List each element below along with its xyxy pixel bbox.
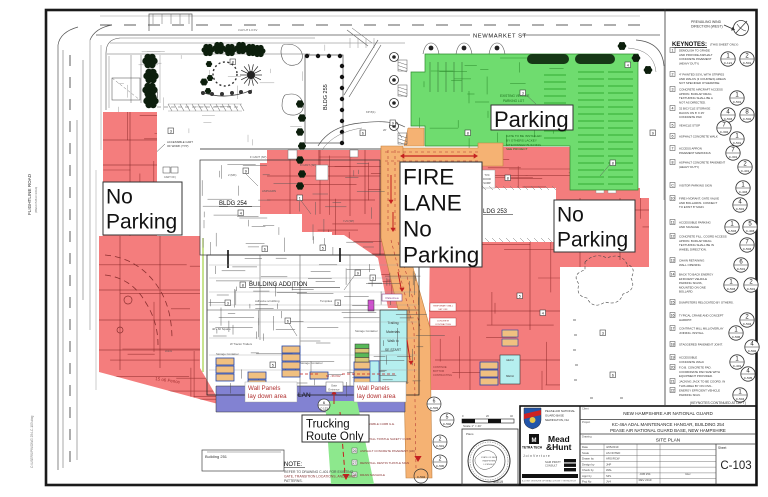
- svg-text:No: No: [106, 185, 133, 208]
- svg-text:(KEYNOTES CONTINUED AT LEFT): (KEYNOTES CONTINUED AT LEFT): [690, 401, 746, 405]
- svg-text:ASPHALT CONCRETE WALK: ASPHALT CONCRETE WALK: [679, 135, 718, 139]
- svg-text:Appr by: Appr by: [582, 474, 592, 478]
- svg-text:8: 8: [467, 131, 469, 135]
- svg-text:Client: Client: [582, 407, 589, 411]
- svg-text:Parking: Parking: [106, 210, 177, 233]
- svg-text:Trailing: Trailing: [388, 321, 399, 325]
- svg-text:Scale 1" = 40': Scale 1" = 40': [463, 424, 482, 428]
- svg-text:21: 21: [671, 380, 675, 384]
- svg-text:8: 8: [672, 161, 674, 165]
- svg-text:9: 9: [357, 271, 359, 275]
- svg-text:BOLLARD.: BOLLARD.: [679, 290, 693, 294]
- svg-text:Rev: Rev: [686, 472, 692, 476]
- svg-text:No: No: [403, 217, 432, 242]
- svg-text:2: 2: [439, 457, 442, 463]
- svg-text:8 CANT (SP): 8 CANT (SP): [300, 163, 316, 167]
- svg-text:C-501: C-501: [733, 141, 742, 145]
- svg-text:CART OF): CART OF): [164, 176, 176, 179]
- svg-text:SITE PLAN: SITE PLAN: [656, 438, 681, 444]
- svg-text:W Tractor Trailers: W Tractor Trailers: [230, 342, 253, 346]
- svg-text:8: 8: [612, 161, 614, 165]
- svg-text:lay down area: lay down area: [248, 393, 287, 400]
- svg-text:5: 5: [446, 415, 449, 421]
- svg-text:KP 8(1): KP 8(1): [366, 110, 375, 114]
- svg-text:Proj No: Proj No: [582, 480, 592, 484]
- svg-text:1: 1: [299, 196, 301, 200]
- svg-text:CATE TO BE INSTALLED: CATE TO BE INSTALLED: [506, 134, 542, 138]
- svg-text:2: 2: [672, 73, 674, 77]
- svg-text:Design by: Design by: [582, 462, 595, 466]
- svg-text:Building 251: Building 251: [205, 454, 228, 459]
- svg-text:Storage Container: Storage Container: [300, 361, 323, 365]
- svg-text:Adhesive scrubbing: Adhesive scrubbing: [255, 299, 280, 303]
- svg-text:C-504: C-504: [743, 322, 752, 326]
- svg-text:CONCRETE WALK: CONCRETE WALK: [679, 360, 704, 364]
- svg-text:CONTINUE: CONTINUE: [433, 365, 447, 369]
- svg-text:LICENSED: LICENSED: [484, 464, 495, 466]
- svg-text:TEMPORARY WALL: TEMPORARY WALL: [433, 305, 454, 308]
- svg-text:BUILDING ADDITION: BUILDING ADDITION: [249, 282, 307, 288]
- svg-text:OF WORK (TYP): OF WORK (TYP): [167, 144, 189, 148]
- svg-text:FIRE: FIRE: [403, 165, 454, 190]
- svg-text:6: 6: [433, 399, 436, 405]
- svg-text:REFER TO DRAWING C-401 FOR EXI: REFER TO DRAWING C-401 FOR EXISTING: [284, 470, 354, 474]
- svg-text:WAL: WAL: [606, 468, 612, 472]
- svg-text:FLIGHTLINE ROAD: FLIGHTLINE ROAD: [27, 173, 32, 215]
- svg-text:C-403: C-403: [739, 190, 748, 194]
- svg-text:GATE, TRANSITION LOCATIONS, AN: GATE, TRANSITION LOCATIONS, AND POINT: [284, 475, 356, 479]
- svg-text:PEASE AIR NATIONAL: PEASE AIR NATIONAL: [545, 409, 576, 413]
- svg-text:2: 2: [439, 437, 442, 443]
- svg-text:C-403: C-403: [746, 229, 755, 233]
- svg-text:HECU: HECU: [506, 358, 513, 362]
- svg-text:3: 3: [522, 91, 524, 95]
- svg-text:9: 9: [245, 169, 247, 173]
- svg-text:20': 20': [383, 128, 387, 132]
- svg-text:3: 3: [170, 129, 172, 133]
- svg-text:HAMPSHIRE: HAMPSHIRE: [482, 460, 496, 463]
- svg-text:NEWMARKET ST: NEWMARKET ST: [473, 34, 527, 40]
- svg-text:22: 22: [671, 389, 675, 393]
- svg-text:C-103: C-103: [720, 460, 751, 472]
- svg-text:(HEAVY DUTY): (HEAVY DUTY): [679, 165, 699, 169]
- svg-text:SITE/OWNER BUILDING: SITE/OWNER BUILDING: [506, 143, 542, 147]
- svg-text:CONCRETE: CONCRETE: [437, 321, 450, 323]
- svg-text:HARDPIT.: HARDPIT.: [679, 318, 692, 322]
- svg-text:F CANT (SP): F CANT (SP): [250, 155, 266, 159]
- svg-text:9: 9: [652, 131, 654, 135]
- svg-text:Plans: Plans: [466, 432, 474, 436]
- svg-text:2 (MK): 2 (MK): [228, 173, 236, 177]
- svg-text:Drawing: Drawing: [582, 435, 592, 439]
- svg-text:TETRA TECH: TETRA TECH: [522, 446, 543, 450]
- svg-text:Date: Date: [582, 445, 588, 449]
- svg-text:C:\USERS\PW\DWG 254-C-103.dwg: C:\USERS\PW\DWG 254-C-103.dwg: [30, 415, 34, 468]
- svg-text:Parking: Parking: [403, 243, 479, 268]
- svg-text:4/5/19: 4/5/19: [493, 480, 503, 484]
- svg-text:Storage Container: Storage Container: [355, 329, 378, 333]
- svg-text:C-506: C-506: [436, 464, 445, 468]
- svg-text:C-505: C-505: [744, 376, 753, 380]
- svg-text:AS NOTED: AS NOTED: [606, 451, 620, 455]
- svg-text:CONCRETE PAD: CONCRETE PAD: [679, 115, 702, 119]
- svg-text:WALL OPENING: WALL OPENING: [679, 263, 702, 267]
- svg-text:6: 6: [362, 131, 364, 135]
- svg-text:7: 7: [672, 147, 674, 151]
- svg-text:C-502: C-502: [443, 422, 452, 426]
- svg-text:GUARD BASE: GUARD BASE: [545, 414, 564, 418]
- svg-text:C-502: C-502: [748, 349, 757, 353]
- svg-text:NEW HAMPSHIRE AIR NATIONAL GUA: NEW HAMPSHIRE AIR NATIONAL GUARD: [623, 411, 713, 416]
- svg-text:5: 5: [272, 363, 274, 367]
- svg-text:MECH: MECH: [506, 374, 514, 378]
- svg-text:C-501: C-501: [436, 444, 445, 448]
- svg-text:13: 13: [671, 259, 675, 263]
- svg-text:BLDG 255: BLDG 255: [323, 84, 329, 110]
- svg-text:SAM PRATT: SAM PRATT: [545, 460, 561, 464]
- svg-text:C-302: C-302: [720, 130, 729, 134]
- svg-text:3: 3: [227, 301, 229, 305]
- svg-text:NEWINGTON, NH: NEWINGTON, NH: [545, 418, 569, 422]
- svg-text:REINSTALL DESTIN THISTLE SIGN: REINSTALL DESTIN THISTLE SIGN: [360, 461, 409, 465]
- svg-text:NOT SPECIFIED OTHERWISE: NOT SPECIFIED OTHERWISE: [679, 81, 719, 85]
- svg-text:C-401: C-401: [733, 364, 742, 368]
- svg-text:C-501: C-501: [737, 267, 746, 271]
- svg-text:27: 27: [353, 461, 357, 465]
- svg-text:Parking: Parking: [494, 107, 569, 132]
- svg-text:KEYNOTES:: KEYNOTES:: [672, 42, 707, 48]
- svg-text:(THIS SHEET ONLY): (THIS SHEET ONLY): [710, 43, 738, 47]
- svg-text:6: 6: [287, 319, 289, 323]
- svg-text:C-503: C-503: [743, 247, 752, 251]
- svg-text:Project: Project: [582, 420, 590, 424]
- svg-text:Drawn by: Drawn by: [582, 457, 594, 461]
- svg-text:Wall Panels: Wall Panels: [357, 385, 389, 392]
- svg-text:C-503: C-503: [728, 229, 737, 233]
- svg-text:11: 11: [671, 221, 675, 225]
- svg-text:SPL: SPL: [606, 474, 612, 478]
- svg-text:3: 3: [602, 331, 604, 335]
- svg-text:26: 26: [353, 449, 357, 453]
- svg-text:Wall Panels: Wall Panels: [248, 385, 280, 392]
- svg-text:(HEAVY DUTY): (HEAVY DUTY): [679, 61, 699, 65]
- svg-text:PATTERNS.: PATTERNS.: [284, 479, 303, 483]
- svg-text:A JOINT VENTURE OF MEAD & HUNT: A JOINT VENTURE OF MEAD & HUNT / TETRA T…: [522, 480, 576, 483]
- svg-text:C-504: C-504: [417, 475, 426, 479]
- svg-text:C-501: C-501: [733, 100, 742, 104]
- svg-text:20: 20: [671, 366, 675, 370]
- svg-text:18: 18: [671, 343, 675, 347]
- svg-text:3: 3: [372, 276, 374, 280]
- svg-text:DRAIN MANHOLE: DRAIN MANHOLE: [360, 473, 385, 477]
- svg-text:8: 8: [507, 176, 509, 180]
- svg-text:Walk to: Walk to: [387, 339, 398, 343]
- svg-text:SEE PROJECT: SEE PROJECT: [506, 147, 528, 151]
- svg-text:AND SIGNAGE: AND SIGNAGE: [679, 225, 699, 229]
- svg-text:Storage Container: Storage Container: [216, 352, 239, 356]
- svg-text:DIRECTION (WEST): DIRECTION (WEST): [691, 25, 723, 29]
- svg-text:C-501: C-501: [747, 287, 756, 291]
- svg-text:JOB 254: JOB 254: [640, 472, 651, 476]
- svg-text:No: No: [557, 203, 584, 226]
- svg-text:VISITOR PARKING SIGN: VISITOR PARKING SIGN: [679, 184, 712, 188]
- svg-text:16: 16: [671, 314, 675, 318]
- svg-text:12: 12: [671, 235, 675, 239]
- svg-text:C-123: C-123: [320, 407, 328, 411]
- svg-text:JOINING. INSTALL: JOINING. INSTALL: [679, 331, 704, 335]
- svg-text:14: 14: [671, 273, 675, 277]
- svg-text:JHP: JHP: [606, 462, 611, 466]
- svg-text:VEHICLE STOP: VEHICLE STOP: [679, 124, 700, 128]
- svg-text:C-503: C-503: [430, 406, 439, 410]
- svg-text:C-503: C-503: [724, 117, 733, 121]
- svg-text:C-121: C-121: [724, 61, 733, 65]
- svg-text:PARKING LOT: PARKING LOT: [503, 99, 524, 103]
- svg-text:4/05/2019: 4/05/2019: [606, 445, 619, 449]
- svg-text:DUMPSTERS RELOCATED BY OTHERS.: DUMPSTERS RELOCATED BY OTHERS.: [679, 301, 734, 305]
- svg-text:6: 6: [264, 247, 266, 251]
- svg-text:5: 5: [672, 124, 674, 128]
- svg-text:4: 4: [627, 63, 629, 67]
- svg-text:Sheet: Sheet: [718, 446, 726, 450]
- svg-text:STAGGERED PAVEMENT JOINT.: STAGGERED PAVEMENT JOINT.: [679, 343, 723, 347]
- svg-text:Trucking: Trucking: [306, 419, 350, 431]
- svg-text:ARG/RCW: ARG/RCW: [606, 457, 620, 461]
- svg-text:6: 6: [672, 135, 674, 139]
- svg-text:STATE OF NEW: STATE OF NEW: [481, 456, 498, 459]
- svg-text:J o i n V e r t u r e: J o i n V e r t u r e: [523, 454, 550, 458]
- svg-text:Pala Area: Pala Area: [385, 296, 398, 300]
- svg-text:REV 2019: REV 2019: [639, 478, 652, 482]
- svg-text:C-506: C-506: [732, 335, 741, 339]
- svg-text:C-503: C-503: [727, 287, 736, 291]
- svg-text:CONSULT: CONSULT: [545, 464, 558, 468]
- svg-text:(PAVED PUBLIC ROAD): (PAVED PUBLIC ROAD): [35, 187, 38, 213]
- svg-text:ASPGGRN: ASPGGRN: [262, 189, 276, 193]
- svg-text:CONTRACTING: CONTRACTING: [435, 323, 451, 326]
- svg-text:17: 17: [671, 327, 675, 331]
- svg-text:5: 5: [322, 246, 324, 250]
- svg-text:9: 9: [392, 121, 394, 125]
- svg-text:NOT AS DIRECTED.: NOT AS DIRECTED.: [679, 100, 706, 104]
- svg-text:C-501: C-501: [736, 207, 745, 211]
- svg-text:Check by: Check by: [582, 468, 594, 472]
- svg-text:SUMP: SUMP: [483, 181, 491, 185]
- svg-text:PEASE AIR NATIONAL GUARD BASE,: PEASE AIR NATIONAL GUARD BASE, NEW HAMPS…: [610, 428, 726, 433]
- svg-text:7+5 (SP): 7+5 (SP): [343, 219, 354, 223]
- svg-text:PARKING SIGN.: PARKING SIGN.: [679, 393, 701, 397]
- svg-text:DOOR: DOOR: [483, 177, 491, 181]
- svg-text:LDG 253: LDG 253: [483, 209, 508, 215]
- svg-text:LANE: LANE: [403, 191, 462, 216]
- svg-text:Route Only: Route Only: [306, 431, 364, 443]
- svg-text:TO EXIST 8" MAIN.: TO EXIST 8" MAIN.: [679, 205, 705, 209]
- svg-text:SE START: SE START: [385, 348, 401, 352]
- svg-text:C-501: C-501: [743, 61, 752, 65]
- svg-text:NOTE:: NOTE:: [284, 462, 303, 468]
- svg-text:10: 10: [671, 197, 675, 201]
- svg-text:4: 4: [672, 107, 674, 111]
- svg-text:JV4: JV4: [606, 480, 611, 484]
- svg-text:LAN: LAN: [298, 392, 311, 399]
- svg-text:6: 6: [612, 373, 614, 377]
- svg-text:8: 8: [242, 283, 244, 287]
- svg-text:C-301: C-301: [729, 155, 738, 159]
- svg-text:PAVEMENT MARKINGS: PAVEMENT MARKINGS: [679, 151, 711, 155]
- svg-text:19: 19: [671, 356, 675, 360]
- svg-text:BY OTHERS LACKEY: BY OTHERS LACKEY: [506, 138, 537, 142]
- svg-text:4: 4: [240, 211, 242, 215]
- svg-text:BLDG 254: BLDG 254: [219, 201, 248, 207]
- svg-text:3: 3: [672, 88, 674, 92]
- svg-text:lay down area: lay down area: [357, 393, 396, 400]
- svg-text:Entrance: Entrance: [328, 388, 340, 392]
- svg-text:WHEEL DIRECTION.: WHEEL DIRECTION.: [679, 247, 707, 251]
- svg-text:KC-46A ADAL MAINTENANCE HANGAR: KC-46A ADAL MAINTENANCE HANGAR, BUILDING…: [612, 422, 725, 427]
- svg-text:THIS AREA BY ON CIVIL.: THIS AREA BY ON CIVIL.: [679, 384, 713, 388]
- svg-text:SET OFF: SET OFF: [438, 309, 448, 311]
- svg-text:ASPHALT CONCRETE PAVEMENT (HD): ASPHALT CONCRETE PAVEMENT (HD): [360, 449, 415, 453]
- svg-text:BOTTOM: BOTTOM: [433, 369, 444, 373]
- svg-text:40'x 60 Square: 40'x 60 Square: [212, 327, 231, 331]
- svg-text:3: 3: [337, 301, 339, 305]
- svg-text:CONTRACTING: CONTRACTING: [433, 373, 452, 377]
- svg-text:5: 5: [519, 294, 521, 298]
- svg-text:4: 4: [542, 311, 544, 315]
- svg-text:C: C: [671, 184, 674, 188]
- svg-text:3 AV HT 1.0 KV: 3 AV HT 1.0 KV: [238, 28, 257, 32]
- svg-text:TVC: TVC: [484, 173, 489, 177]
- svg-text:Parking: Parking: [557, 228, 628, 251]
- svg-text:Scale: Scale: [582, 451, 589, 455]
- svg-text:EQUIPMENT PROVIDED.: EQUIPMENT PROVIDED.: [679, 374, 713, 378]
- svg-text:C-401: C-401: [741, 169, 750, 173]
- svg-text:60 - 66 PAV: 60 - 66 PAV: [326, 374, 341, 378]
- svg-text:15: 15: [671, 301, 675, 305]
- svg-text:xxxxx: xxxxx: [165, 349, 173, 353]
- svg-text:PREVAILING WIND: PREVAILING WIND: [691, 20, 722, 24]
- svg-text:M: M: [532, 438, 537, 444]
- svg-text:Materials: Materials: [386, 330, 400, 334]
- svg-text:&Hunt: &Hunt: [546, 442, 572, 452]
- svg-text:Turnpikes: Turnpikes: [320, 299, 333, 303]
- svg-text:C-502: C-502: [743, 117, 752, 121]
- svg-text:1: 1: [672, 49, 674, 53]
